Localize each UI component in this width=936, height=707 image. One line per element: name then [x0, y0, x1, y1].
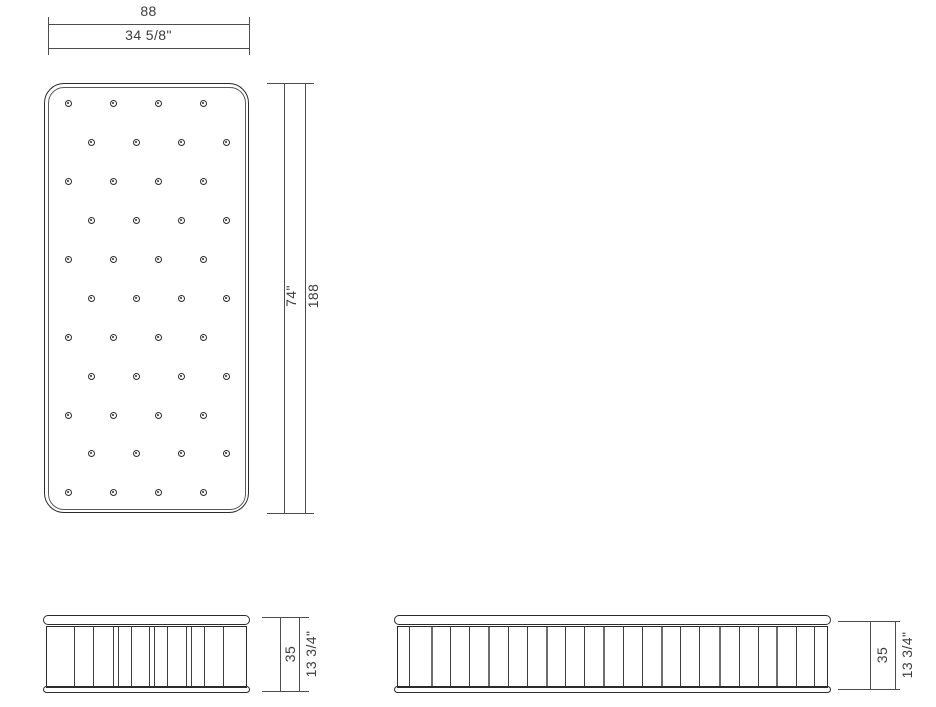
tuft-button	[133, 217, 140, 224]
front-side-view-bottom-border	[43, 686, 250, 694]
quilt-line	[131, 627, 132, 687]
tuft-button	[88, 139, 95, 146]
quilt-line	[93, 627, 94, 687]
quilt-line	[680, 627, 681, 687]
tuft-button	[200, 100, 207, 107]
quilt-line	[167, 627, 168, 687]
front-height-dim-tick-top	[262, 617, 309, 618]
tuft-button	[155, 100, 162, 107]
quilt-line	[565, 627, 566, 687]
tuft-button	[110, 489, 117, 496]
quilt-line	[118, 627, 119, 687]
tuft-button	[178, 139, 185, 146]
tuft-button	[65, 412, 72, 419]
length-dim-tick-top	[267, 83, 314, 84]
tuft-button	[200, 334, 207, 341]
long-side-view-top-border	[394, 615, 831, 625]
tuft-button	[88, 217, 95, 224]
quilt-line	[149, 627, 150, 687]
tuft-button	[178, 295, 185, 302]
tuft-button	[200, 489, 207, 496]
long-height-dim-line-in	[895, 621, 896, 689]
quilt-line	[776, 627, 778, 687]
quilt-line	[699, 627, 700, 687]
tuft-button	[223, 373, 230, 380]
tuft-button	[178, 373, 185, 380]
quilt-line	[584, 627, 585, 687]
quilt-line	[546, 627, 548, 687]
quilt-line	[661, 627, 663, 687]
quilt-line	[204, 627, 205, 687]
quilt-line	[527, 627, 528, 687]
quilt-line	[796, 627, 797, 687]
long-quilt-layer	[398, 627, 827, 687]
length-dim-in-label: 74"	[283, 285, 299, 307]
front-height-dim-tick-bottom	[262, 691, 309, 692]
tuft-button	[223, 217, 230, 224]
quilt-line	[642, 627, 643, 687]
tuft-button	[88, 373, 95, 380]
tuft-button	[223, 139, 230, 146]
quilt-line	[814, 627, 815, 687]
quilt-line	[739, 627, 740, 687]
tuft-button	[88, 295, 95, 302]
long-height-dim-tick-top	[838, 621, 900, 622]
tuft-button	[200, 412, 207, 419]
quilt-line	[623, 627, 624, 687]
long-height-dim-line-cm	[870, 621, 871, 689]
tuft-button	[155, 256, 162, 263]
long-height-dim-tick-bottom	[838, 689, 900, 690]
front-height-dim-line-in	[299, 617, 300, 691]
quilt-line	[186, 627, 187, 687]
quilt-line	[758, 627, 759, 687]
tuft-button	[155, 489, 162, 496]
tuft-button	[200, 256, 207, 263]
tuft-button	[110, 178, 117, 185]
front-side-view-body	[46, 626, 247, 688]
front-quilt-layer	[47, 627, 246, 687]
tuft-button	[65, 100, 72, 107]
tuft-button	[155, 412, 162, 419]
quilt-line	[508, 627, 509, 687]
quilt-line	[113, 627, 114, 687]
quilt-line	[431, 627, 433, 687]
tuft-button	[110, 100, 117, 107]
quilt-line	[603, 627, 605, 687]
tuft-button	[88, 450, 95, 457]
front-height-dim-line-cm	[280, 617, 281, 691]
quilt-line	[74, 627, 75, 687]
tuft-button	[65, 334, 72, 341]
long-side-view-bottom-border	[394, 686, 831, 694]
quilt-line	[469, 627, 470, 687]
tuft-button	[65, 489, 72, 496]
long-side-view-body	[397, 626, 828, 688]
long-height-in-label: 13 3/4"	[899, 632, 915, 679]
tuft-button-layer	[0, 0, 936, 707]
long-height-cm-label: 35	[874, 647, 890, 663]
tuft-button	[65, 256, 72, 263]
quilt-line	[154, 627, 155, 687]
tuft-button	[200, 178, 207, 185]
tuft-button	[110, 256, 117, 263]
tuft-button	[133, 295, 140, 302]
tuft-button	[133, 373, 140, 380]
tuft-button	[110, 412, 117, 419]
tuft-button	[155, 334, 162, 341]
mattress-technical-drawing: 88 34 5/8" 74" 188 35 13 3/4" 35 13 3/4"	[0, 0, 936, 707]
front-side-view-top-border	[43, 615, 250, 625]
quilt-line	[409, 627, 410, 687]
tuft-button	[65, 178, 72, 185]
tuft-button	[223, 450, 230, 457]
quilt-line	[223, 627, 224, 687]
length-dim-tick-bottom	[267, 513, 314, 514]
tuft-button	[155, 178, 162, 185]
tuft-button	[133, 450, 140, 457]
tuft-button	[223, 295, 230, 302]
length-dim-cm-label: 188	[305, 284, 321, 309]
front-height-in-label: 13 3/4"	[303, 631, 319, 678]
quilt-line	[488, 627, 490, 687]
tuft-button	[178, 450, 185, 457]
tuft-button	[178, 217, 185, 224]
front-height-cm-label: 35	[282, 646, 298, 662]
quilt-line	[450, 627, 451, 687]
quilt-line	[719, 627, 721, 687]
tuft-button	[133, 139, 140, 146]
tuft-button	[110, 334, 117, 341]
quilt-line	[191, 627, 192, 687]
